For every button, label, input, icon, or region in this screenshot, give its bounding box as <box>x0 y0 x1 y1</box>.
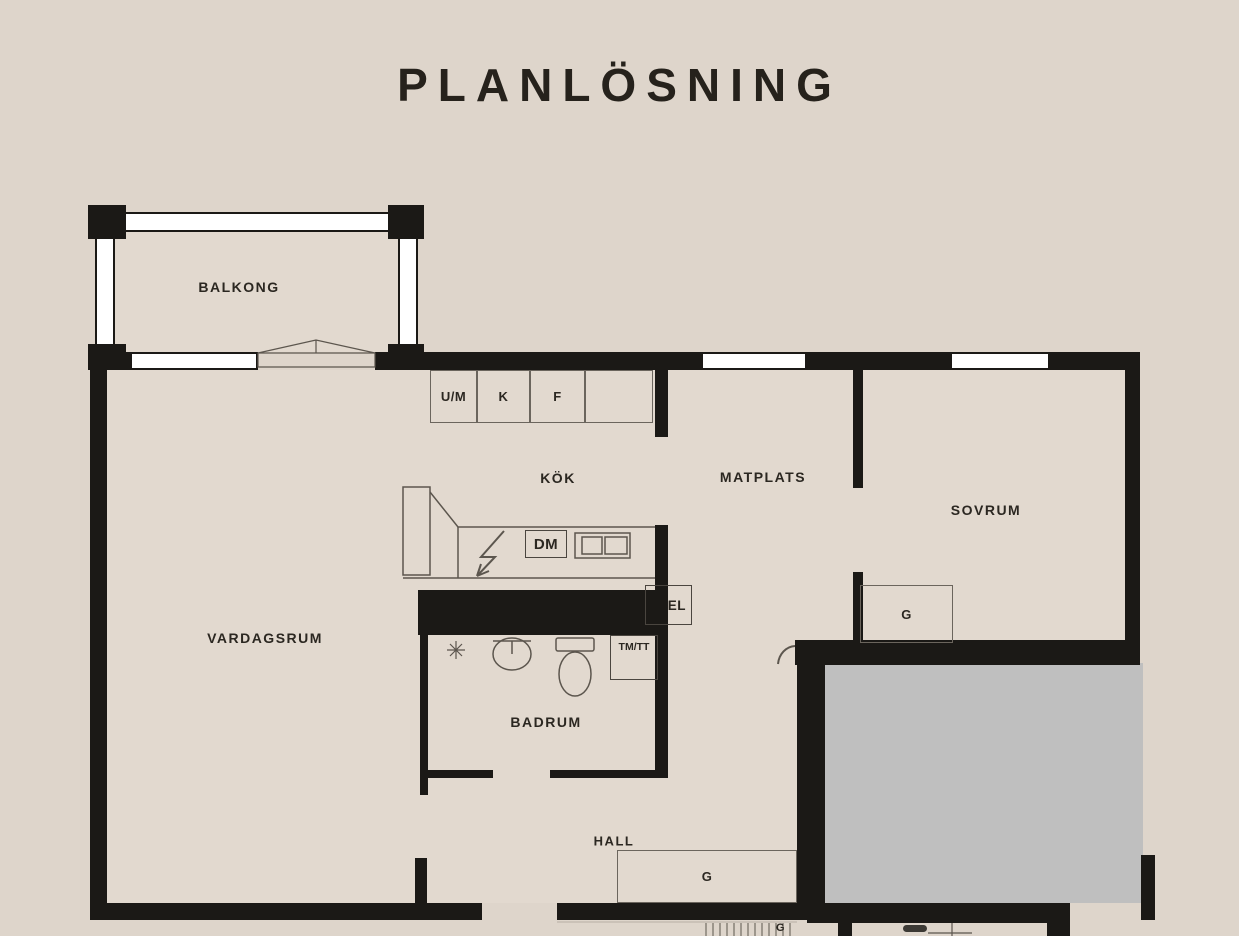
room-label-kok: KÖK <box>540 470 576 486</box>
room-label-badrum: BADRUM <box>510 714 581 730</box>
room-label-sovrum: SOVRUM <box>951 502 1021 518</box>
floor-plan: PLANLÖSNING U/M K F DM <box>0 0 1239 936</box>
room-label-hall: HALL <box>594 834 635 849</box>
fixture-linework <box>0 0 1239 936</box>
room-label-matplats: MATPLATS <box>720 469 806 485</box>
room-label-vardagsrum: VARDAGSRUM <box>207 630 323 646</box>
wardrobe-lower-label: G <box>776 922 786 934</box>
room-label-balkong: BALKONG <box>198 279 279 295</box>
